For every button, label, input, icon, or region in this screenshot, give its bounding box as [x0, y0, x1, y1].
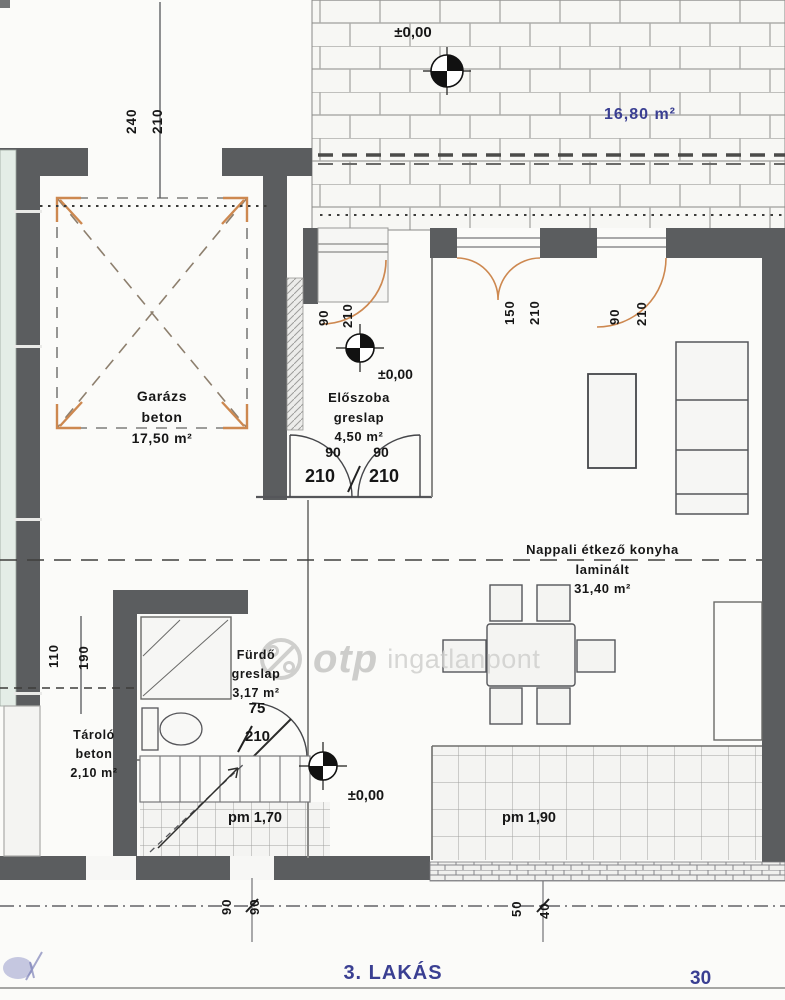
dim-bath-door-height: 210	[230, 728, 285, 745]
terrace-area-label: 16,80 m²	[570, 106, 710, 124]
coffee-table	[588, 374, 636, 468]
pm-label-stairs: pm 1,70	[228, 810, 313, 826]
dim-garage-door-width: 240	[124, 90, 139, 152]
room-floor: beton	[34, 745, 154, 764]
room-area: 4,50 m²	[290, 427, 428, 447]
room-name: Nappali étkező konyha	[490, 540, 715, 560]
room-label-nappali: Nappali étkező konyha laminált 31,40 m²	[490, 540, 715, 599]
room-name: Tároló	[34, 726, 154, 745]
room-area: 17,50 m²	[92, 428, 232, 449]
dim-bottom-right-b: 40	[537, 888, 552, 934]
dim-window-height: 210	[527, 286, 542, 340]
dim-entry-door-height: 210	[340, 288, 355, 344]
dim-terrace-door-width: 90	[607, 294, 622, 340]
dim-double-door-right-height: 210	[358, 466, 410, 487]
dim-bottom-left-a: 90	[219, 880, 234, 934]
elevation-label-entry: ±0,00	[358, 366, 433, 382]
dim-garage-door-height: 210	[150, 90, 165, 152]
room-label-tarolo: Tároló beton 2,10 m²	[34, 726, 154, 782]
room-label-eloszoba: Előszoba greslap 4,50 m²	[290, 388, 428, 447]
terrace-bottom-paving	[432, 746, 762, 860]
dim-bath-door-width: 75	[242, 700, 272, 717]
watermark-brand: otp	[313, 637, 378, 682]
dim-window-width: 150	[502, 286, 517, 340]
floor-plan-page: otp ingatlanpont ±0,00 16,80 m² 240 210 …	[0, 0, 785, 1000]
floor-plan-drawing	[0, 0, 785, 1000]
dim-entry-door-width: 90	[316, 294, 331, 342]
room-name: Fürdő	[198, 646, 314, 665]
room-floor: greslap	[198, 665, 314, 684]
room-name: Garázs	[92, 386, 232, 407]
room-floor: laminált	[490, 560, 715, 580]
room-floor: beton	[92, 407, 232, 428]
sheet-title: 3. LAKÁS	[318, 962, 468, 985]
dim-terrace-door-height: 210	[634, 286, 649, 342]
watermark-suffix: ingatlanpont	[387, 644, 540, 675]
dim-double-door-right-width: 90	[366, 444, 396, 460]
parapet-hatch	[430, 862, 785, 881]
room-floor: greslap	[290, 408, 428, 428]
room-area: 31,40 m²	[490, 579, 715, 599]
dim-storage-width: 110	[46, 628, 61, 684]
room-label-furdo: Fürdő greslap 3,17 m²	[198, 646, 314, 702]
room-label-garage: Garázs beton 17,50 m²	[92, 386, 232, 449]
dim-storage-length: 190	[76, 630, 91, 686]
pm-label-terrace: pm 1,90	[502, 810, 597, 826]
dim-double-door-left-width: 90	[318, 444, 348, 460]
dim-double-door-left-height: 210	[294, 466, 346, 487]
dim-bottom-left-b: 90	[247, 880, 262, 934]
room-area: 2,10 m²	[34, 764, 154, 783]
elevation-label-terrace: ±0,00	[378, 24, 448, 41]
sofa	[676, 342, 748, 514]
dim-bottom-right-a: 50	[509, 884, 524, 934]
room-name: Előszoba	[290, 388, 428, 408]
kitchen-counter	[714, 602, 762, 740]
sheet-corner-note: 30	[690, 968, 711, 990]
elevation-label-stairs: ±0,00	[326, 788, 406, 804]
